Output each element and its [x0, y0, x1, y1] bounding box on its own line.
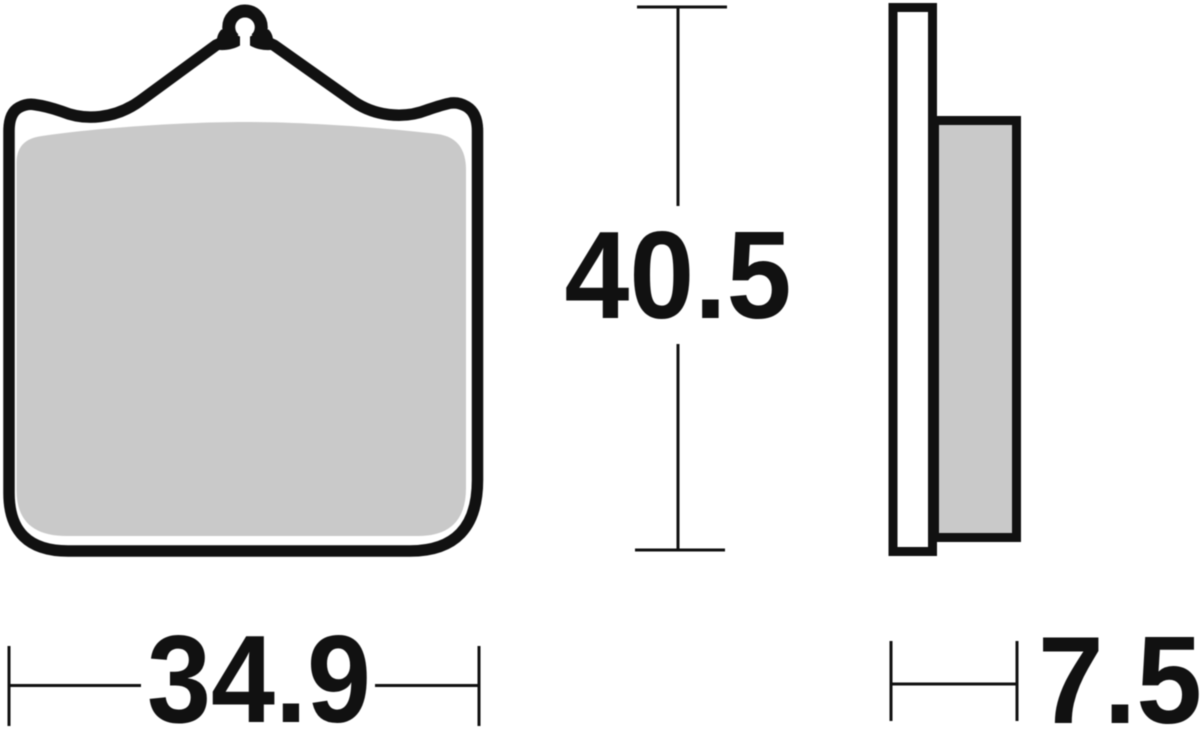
svg-text:7.5: 7.5 — [1038, 612, 1200, 733]
svg-text:40.5: 40.5 — [565, 207, 792, 345]
svg-text:34.9: 34.9 — [147, 611, 371, 733]
